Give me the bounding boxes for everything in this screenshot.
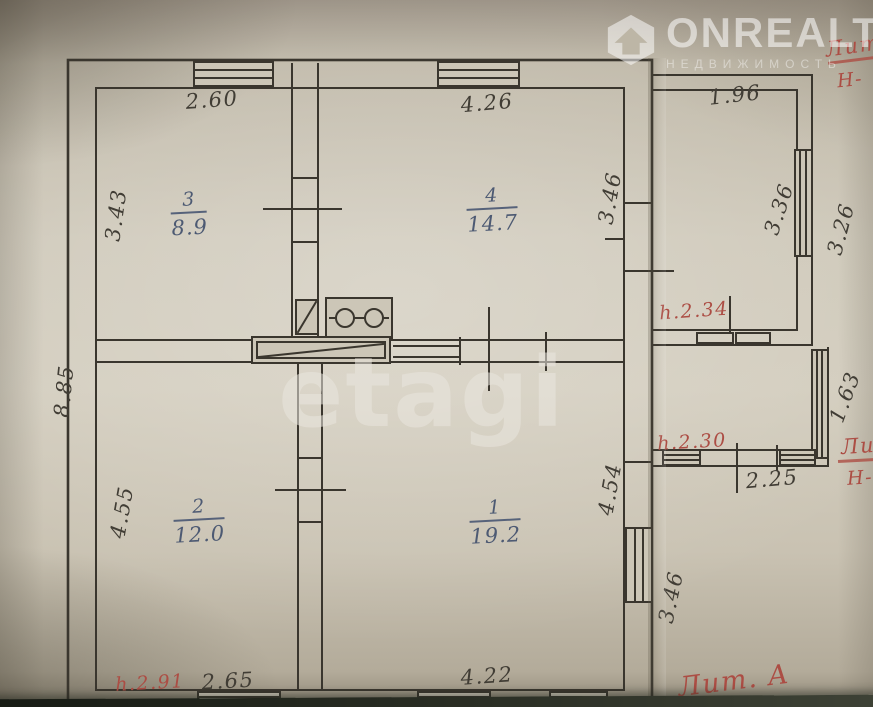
top-wall-windows (194, 62, 519, 86)
dim-porch-bottom: 2.25 (745, 465, 800, 494)
room-3-number: 3 (169, 188, 207, 215)
room-label-1: 1 19.2 (468, 495, 521, 549)
room-2-area: 12.0 (174, 519, 226, 548)
onrealt-watermark: ONREALT НЕДВИЖИМОСТЬ (604, 12, 873, 71)
red-mid-right-height: Н- (846, 466, 873, 490)
red-porch-height: h.2.30 (657, 429, 728, 455)
room-4-area: 14.7 (467, 208, 519, 237)
dim-room1-bottom: 4.22 (460, 662, 514, 690)
red-mid-right-label: Ли (840, 433, 873, 459)
porch-right-window (812, 350, 828, 458)
right-wall-ticks (606, 203, 673, 462)
room-4-number: 4 (465, 183, 517, 211)
dim-room4-top: 4.26 (460, 89, 515, 118)
onrealt-brand-text: ONREALT (666, 12, 873, 54)
red-house-height: h.2.91 (115, 670, 186, 696)
room-label-4: 4 14.7 (465, 183, 518, 237)
dim-room3-top: 2.60 (185, 86, 239, 114)
dim-room2-bottom: 2.65 (201, 668, 255, 695)
room-label-2: 2 12.0 (172, 494, 225, 548)
room-2-number: 2 (172, 494, 224, 522)
floorplan-scan: 2.60 4.26 1.96 3.43 3.46 3.36 3.26 8.85 … (0, 0, 873, 707)
onrealt-logo-icon (604, 12, 658, 68)
room-1-area: 19.2 (470, 520, 522, 549)
red-top-right-height: Н- (836, 68, 864, 93)
annex-right-window (795, 150, 812, 256)
porch-walls (652, 348, 828, 492)
onrealt-subtitle-text: НЕДВИЖИМОСТЬ (666, 57, 873, 71)
right-wall-window (626, 528, 652, 602)
room-3-area: 8.9 (171, 213, 209, 241)
room-1-number: 1 (468, 495, 520, 523)
room-label-3: 3 8.9 (169, 188, 208, 241)
etagi-watermark: etagi (278, 345, 565, 441)
